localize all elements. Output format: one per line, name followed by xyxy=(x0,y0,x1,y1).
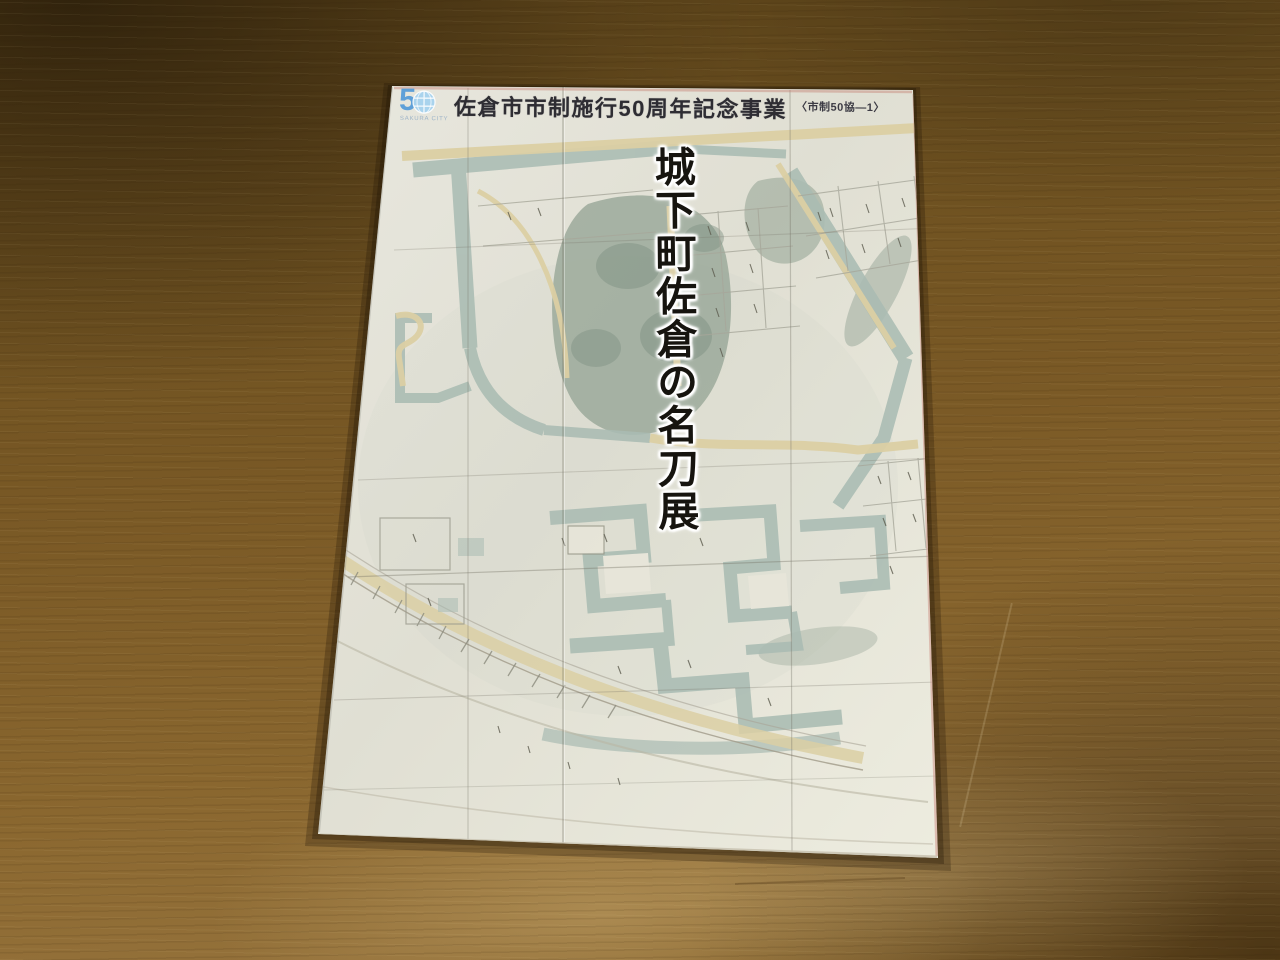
photo-scene: 5 SAKURA CITY 佐倉市市制施行50周年記念事業 〈市制50協―1〉 … xyxy=(0,0,1280,960)
event-title: 佐倉市市制施行50周年記念事業 xyxy=(454,89,787,124)
event-code-label: 〈市制50協―1〉 xyxy=(796,98,885,115)
anniversary-50-logo: 5 SAKURA CITY xyxy=(399,86,445,126)
logo-subtext: SAKURA CITY xyxy=(400,116,449,122)
pamphlet-header: 5 SAKURA CITY 佐倉市市制施行50周年記念事業 〈市制50協―1〉 xyxy=(399,86,885,130)
cover-title: 城下町佐倉の名刀展 xyxy=(599,146,695,534)
